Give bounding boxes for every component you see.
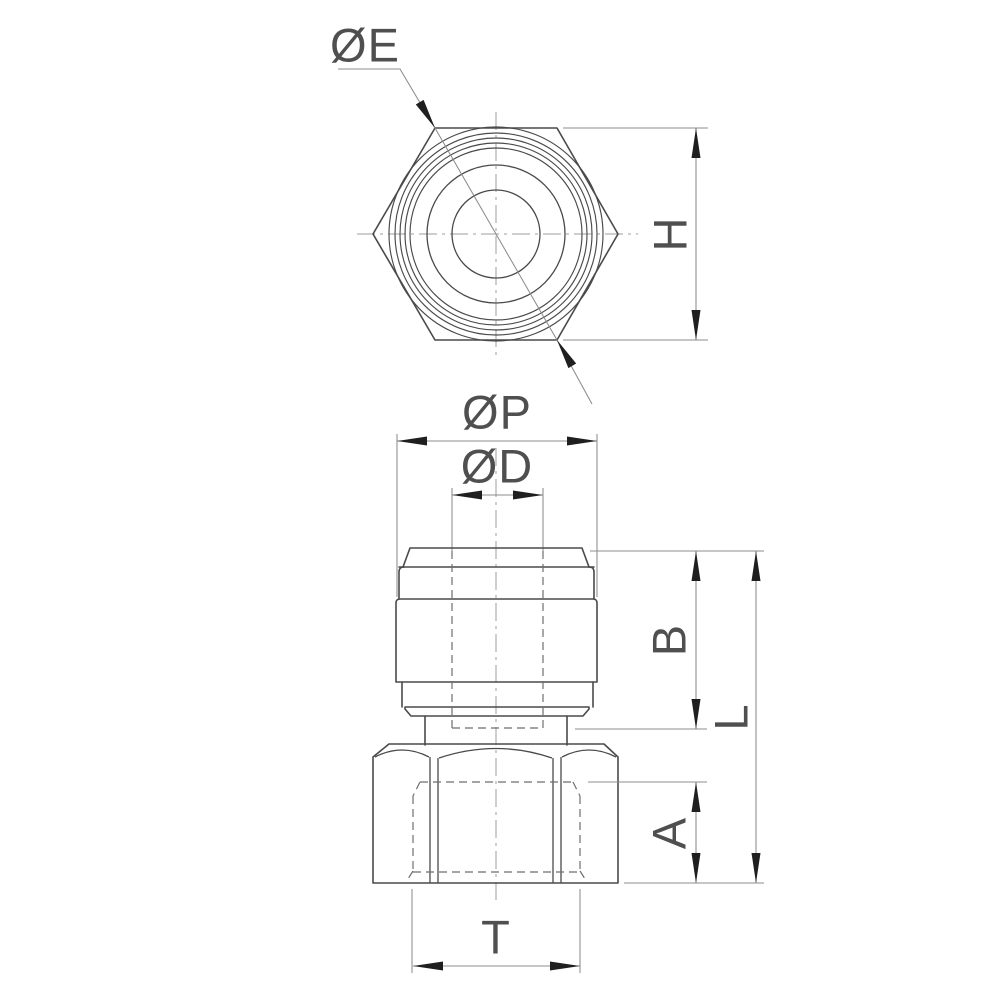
dim-h-arrowhead-top — [692, 128, 701, 158]
dim-h-arrowhead-bottom — [692, 310, 701, 340]
dim-l-arrowhead-top — [752, 551, 761, 581]
dim-d-label: ØD — [461, 440, 534, 493]
dim-p-arrowhead-left — [397, 437, 427, 446]
dim-l-label: L — [705, 703, 758, 730]
dim-e-arrowhead-bottom — [557, 340, 576, 368]
dim-t-label: T — [481, 911, 511, 964]
hex-face-arc-right — [562, 750, 616, 757]
dim-l-arrowhead-bottom — [752, 853, 761, 883]
drawing-sheet: ØE H ØP Ø — [0, 0, 1000, 1000]
dim-b: B — [575, 551, 764, 729]
base-chamfer-outline — [405, 707, 589, 716]
dim-e-label: ØE — [330, 19, 400, 72]
dim-t-arrowhead-left — [413, 962, 443, 971]
dim-a-label: A — [643, 817, 696, 849]
dim-t: T — [412, 889, 580, 973]
dim-b-label: B — [643, 624, 696, 656]
tube-bore-hidden-lines — [452, 551, 543, 728]
hex-face-arc-middle — [439, 749, 552, 759]
dim-a-arrowhead-bottom — [692, 853, 701, 883]
dim-e: ØE — [330, 19, 592, 405]
dim-b-arrowhead-bottom — [692, 699, 701, 729]
dim-p-arrowhead-right — [567, 437, 597, 446]
dim-t-arrowhead-right — [550, 962, 580, 971]
dim-p-label: ØP — [462, 386, 532, 439]
dim-e-leader-line — [338, 69, 435, 128]
dim-a-arrowhead-top — [692, 782, 701, 812]
lower-ring-outline — [402, 682, 593, 707]
front-view: ØP ØD — [373, 386, 764, 974]
fitting-dimension-drawing: ØE H ØP Ø — [0, 0, 1000, 1000]
dim-h-label: H — [644, 217, 697, 252]
top-view: ØE H — [330, 19, 708, 405]
dim-e-arrowhead-top — [416, 100, 435, 128]
dim-d: ØD — [452, 440, 543, 552]
dim-a: A — [588, 782, 707, 883]
dim-b-arrowhead-top — [692, 551, 701, 581]
hex-face-arc-left — [375, 750, 429, 757]
